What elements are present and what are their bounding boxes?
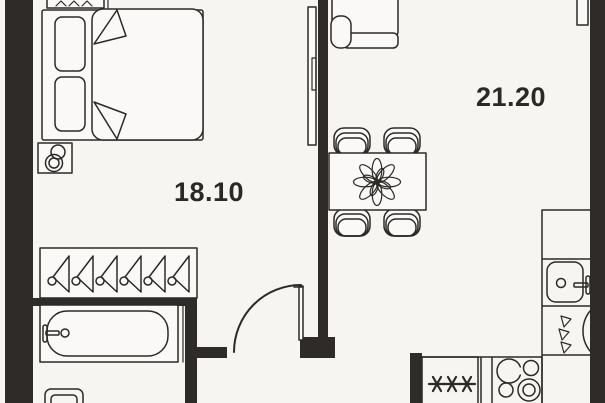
wardrobe [40,248,197,298]
pillow-icon [55,17,85,71]
floor-plan-canvas: 18.10 21.20 [0,0,605,403]
wall-left [5,0,33,403]
sofa-icon [331,0,398,48]
floor-plan: 18.10 21.20 [0,0,605,403]
bedroom-area-label: 18.10 [174,177,244,207]
wall-right [590,0,605,403]
wall-bathroom-right [185,306,197,403]
wall-center [318,0,328,347]
washing-machine-icon [559,311,590,353]
wall-door-left-stub [197,347,227,358]
wall-kitchen-stub [410,353,422,403]
door-swing-icon [234,285,303,352]
washer-door-arc [583,311,590,351]
dining-chair-icon [334,128,370,155]
dining-chair-icon [334,209,370,236]
kitchen-sink-icon [547,262,590,302]
dining-chair-icon [384,128,420,155]
kitchen-bottom-row [422,357,542,403]
wall-door-jamb [300,337,335,358]
toilet-icon [45,389,83,403]
living-area-label: 21.20 [476,82,546,112]
door-leaf-top-right [577,0,588,25]
dining-set [329,128,426,236]
double-bed-icon [42,9,203,140]
freezer-icon [422,357,478,403]
kitchen-counter-icon [542,210,590,403]
tv-unit-icon [308,7,316,145]
radiator-icon [47,0,108,8]
dining-chair-icon [384,209,420,236]
stove-burners-icon [497,359,540,401]
pillow-icon [55,77,85,131]
door-leaf [299,286,303,340]
freezer-stars-icon [429,377,475,391]
water-drops-icon [559,316,571,353]
sink-faucet-icon [574,276,590,294]
bathtub-icon [40,305,183,362]
nightstand-lamp-icon [38,143,72,173]
